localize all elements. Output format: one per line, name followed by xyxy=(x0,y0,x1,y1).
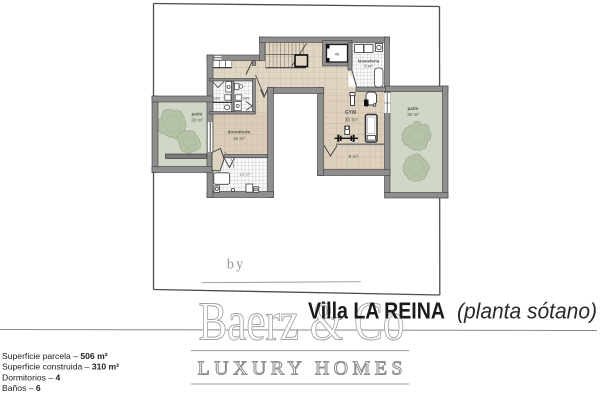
svg-text:20 m²: 20 m² xyxy=(191,118,203,123)
svg-text:baño: baño xyxy=(243,96,250,100)
svg-text:8 m²: 8 m² xyxy=(349,154,359,160)
svg-text:9 m²: 9 m² xyxy=(364,63,373,68)
svg-text:by: by xyxy=(227,257,246,273)
svg-text:Villa LA REINA: Villa LA REINA xyxy=(308,298,445,324)
svg-text:Superficie construida – 310 m²: Superficie construida – 310 m² xyxy=(2,362,119,372)
svg-text:baño: baño xyxy=(213,96,220,100)
svg-text:GYM: GYM xyxy=(345,110,356,116)
svg-text:LUXURY HOMES: LUXURY HOMES xyxy=(198,358,407,380)
svg-text:15 m²: 15 m² xyxy=(233,136,245,141)
svg-text:10 m²: 10 m² xyxy=(239,172,251,177)
svg-text:Dormitorios – 4: Dormitorios – 4 xyxy=(2,372,60,382)
svg-text:patio: patio xyxy=(408,106,419,111)
svg-text:patio: patio xyxy=(192,112,203,117)
svg-text:dormitorio: dormitorio xyxy=(228,130,251,135)
svg-text:Baños – 6: Baños – 6 xyxy=(2,383,41,393)
svg-text:30 m²: 30 m² xyxy=(345,118,358,124)
svg-text:Superficie parcela – 506 m²: Superficie parcela – 506 m² xyxy=(2,351,108,361)
svg-text:30 m²: 30 m² xyxy=(407,112,419,117)
svg-text:(planta sótano): (planta sótano) xyxy=(457,299,597,324)
